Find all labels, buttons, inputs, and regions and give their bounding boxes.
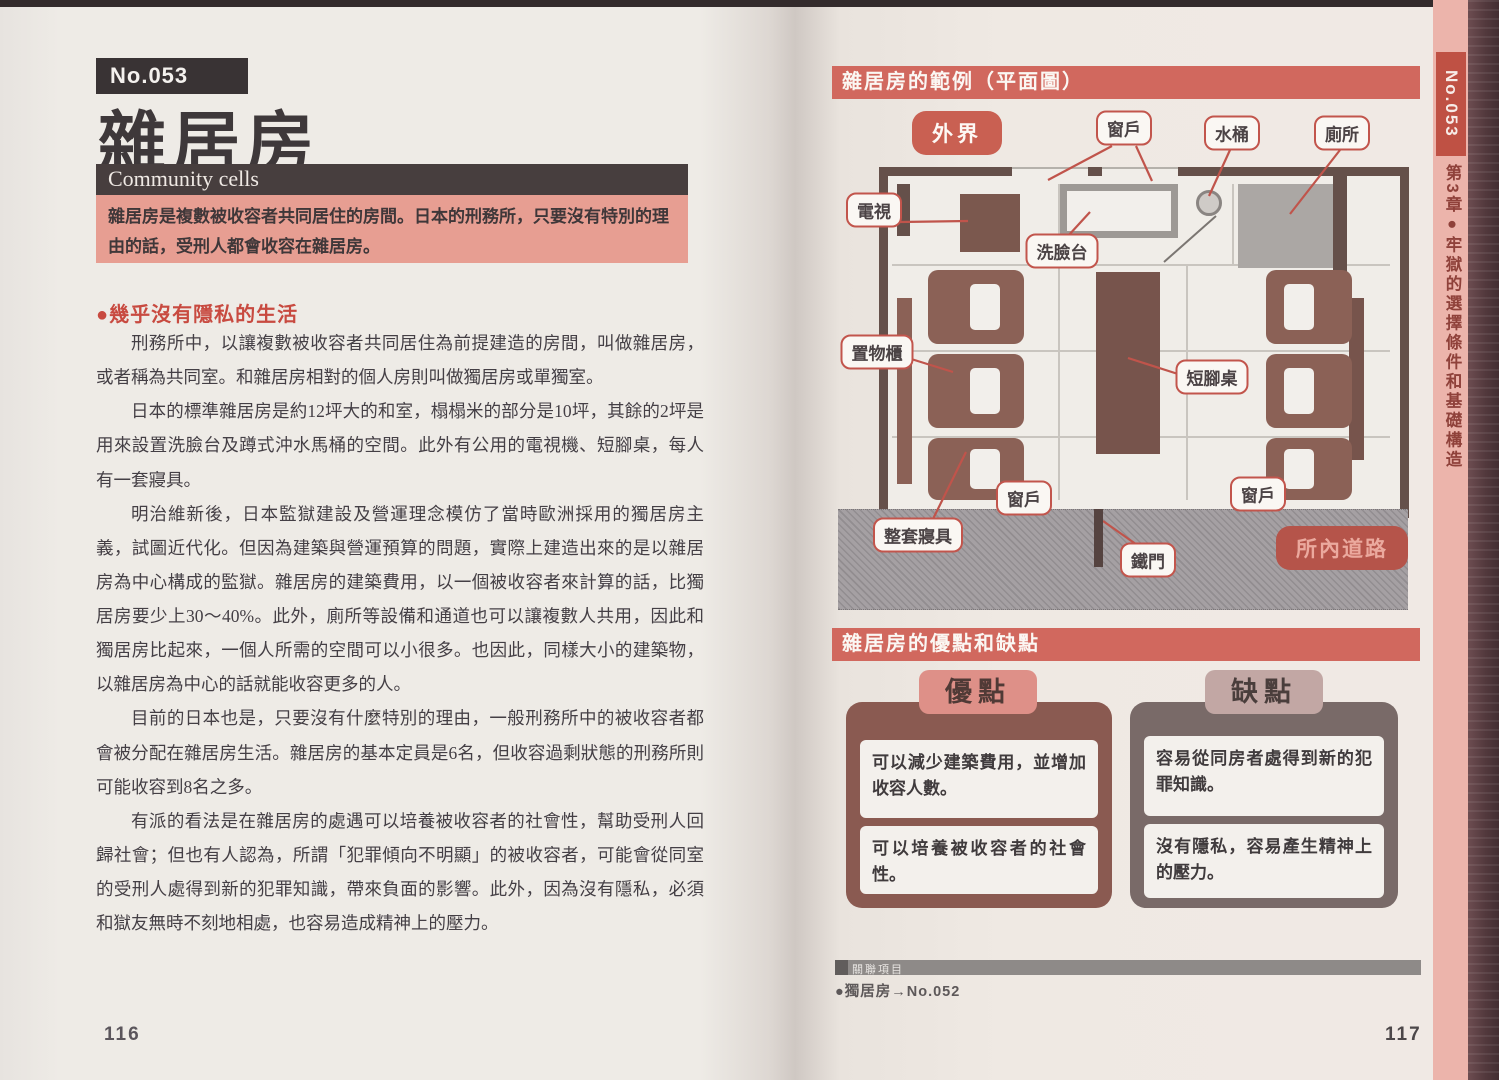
bed-shape [1266, 270, 1352, 344]
plan-label-outside: 外界 [912, 111, 1002, 155]
locker-shape [897, 298, 912, 484]
related-item-link: ●獨居房→No.052 [835, 980, 960, 1001]
plan-label-bedding: 整套寢具 [873, 518, 963, 553]
pros-tab: 優點 [919, 670, 1037, 714]
book-page-edges [1468, 0, 1499, 1080]
pros-item: 可以減少建築費用，並增加收容人數。 [860, 740, 1098, 818]
page-number-right: 117 [1385, 1024, 1422, 1046]
tatami-grid-line [1232, 184, 1234, 266]
intro-summary-box: 雜居房是複數被收容者共同居住的房間。日本的刑務所，只要沒有特別的理由的話，受刑人… [96, 195, 688, 263]
body-text: 刑務所中，以讓複數被收容者共同居住為前提建造的房間，叫做雜居房，或者稱為共同室。… [96, 326, 704, 940]
plan-label-iron-door: 鐵門 [1120, 543, 1176, 578]
related-items-bar: 關聯項目 [835, 960, 1421, 975]
window-gap [1102, 167, 1178, 178]
pros-item: 可以培養被收容者的社會性。 [860, 826, 1098, 894]
related-items-marker [835, 960, 848, 975]
plan-label-window-bottom-right: 窗戶 [1230, 477, 1286, 512]
bed-shape [1266, 354, 1352, 428]
bucket-shape [1196, 190, 1222, 216]
window-gap [1012, 167, 1088, 178]
english-subtitle-bar: Community cells [96, 164, 688, 195]
plan-label-toilet: 廁所 [1314, 116, 1370, 151]
cons-item: 容易從同房者處得到新的犯罪知識。 [1144, 736, 1384, 816]
cons-item: 沒有隱私，容易產生精神上的壓力。 [1144, 824, 1384, 898]
paragraph: 刑務所中，以讓複數被收容者共同居住為前提建造的房間，叫做雜居房，或者稱為共同室。… [96, 326, 704, 394]
book-spread: No.053 雜居房 Community cells 雜居房是複數被收容者共同居… [0, 0, 1499, 1080]
sink-shape [1060, 184, 1178, 238]
book-top-edge [0, 0, 1499, 7]
related-items-title: 關聯項目 [852, 961, 904, 977]
proscons-section-title-bar: 雜居房的優點和缺點 [832, 628, 1420, 661]
plan-label-sink: 洗臉台 [1026, 234, 1099, 269]
plan-section-title-bar: 雜居房的範例（平面圖） [832, 66, 1420, 99]
plan-label-bucket: 水桶 [1204, 116, 1260, 151]
bed-shape [928, 354, 1024, 428]
plan-label-road: 所內道路 [1276, 526, 1408, 570]
low-table-shape [1096, 272, 1160, 454]
iron-door-leaf [1094, 509, 1103, 567]
chapter-tab-title: 第3章●牢獄的選擇條件和基礎構造 [1437, 164, 1467, 804]
paragraph: 明治維新後，日本監獄建設及營運理念模仿了當時歐洲採用的獨居房主義，試圖近代化。但… [96, 497, 704, 702]
plan-label-low-table: 短腳桌 [1176, 360, 1249, 395]
paragraph: 日本的標準雜居房是約12坪大的和室，榻榻米的部分是10坪，其餘的2坪是用來設置洗… [96, 394, 704, 496]
tv-shape [960, 194, 1020, 252]
plan-label-window-top: 窗戶 [1096, 111, 1152, 146]
paragraph: 目前的日本也是，只要沒有什麼特別的理由，一般刑務所中的被收容者都會被分配在雜居房… [96, 701, 704, 803]
section-heading: ●幾乎沒有隱私的生活 [96, 298, 298, 327]
bed-shape [928, 270, 1024, 344]
chapter-tab-entry-number: No.053 [1436, 52, 1466, 156]
plan-label-window-bottom-left: 窗戶 [996, 481, 1052, 516]
plan-label-locker: 置物櫃 [841, 335, 914, 370]
toilet-area [1238, 184, 1333, 268]
cons-tab: 缺點 [1205, 670, 1323, 714]
door-gap [1088, 500, 1122, 509]
page-number-left: 116 [104, 1024, 141, 1046]
plan-label-tv: 電視 [846, 193, 902, 228]
paragraph: 有派的看法是在雜居房的處遇可以培養被收容者的社會性，幫助受刑人回歸社會；但也有人… [96, 804, 704, 941]
